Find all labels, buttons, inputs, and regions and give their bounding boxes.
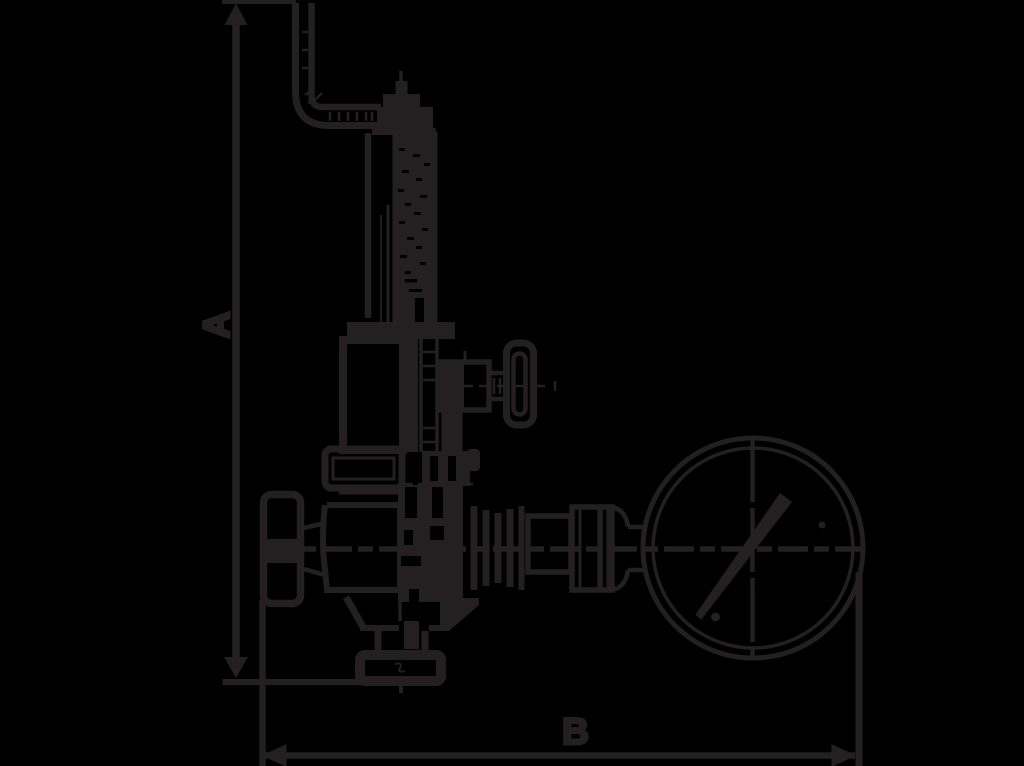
- svg-text:B: B: [562, 711, 589, 752]
- svg-text:A: A: [196, 312, 237, 339]
